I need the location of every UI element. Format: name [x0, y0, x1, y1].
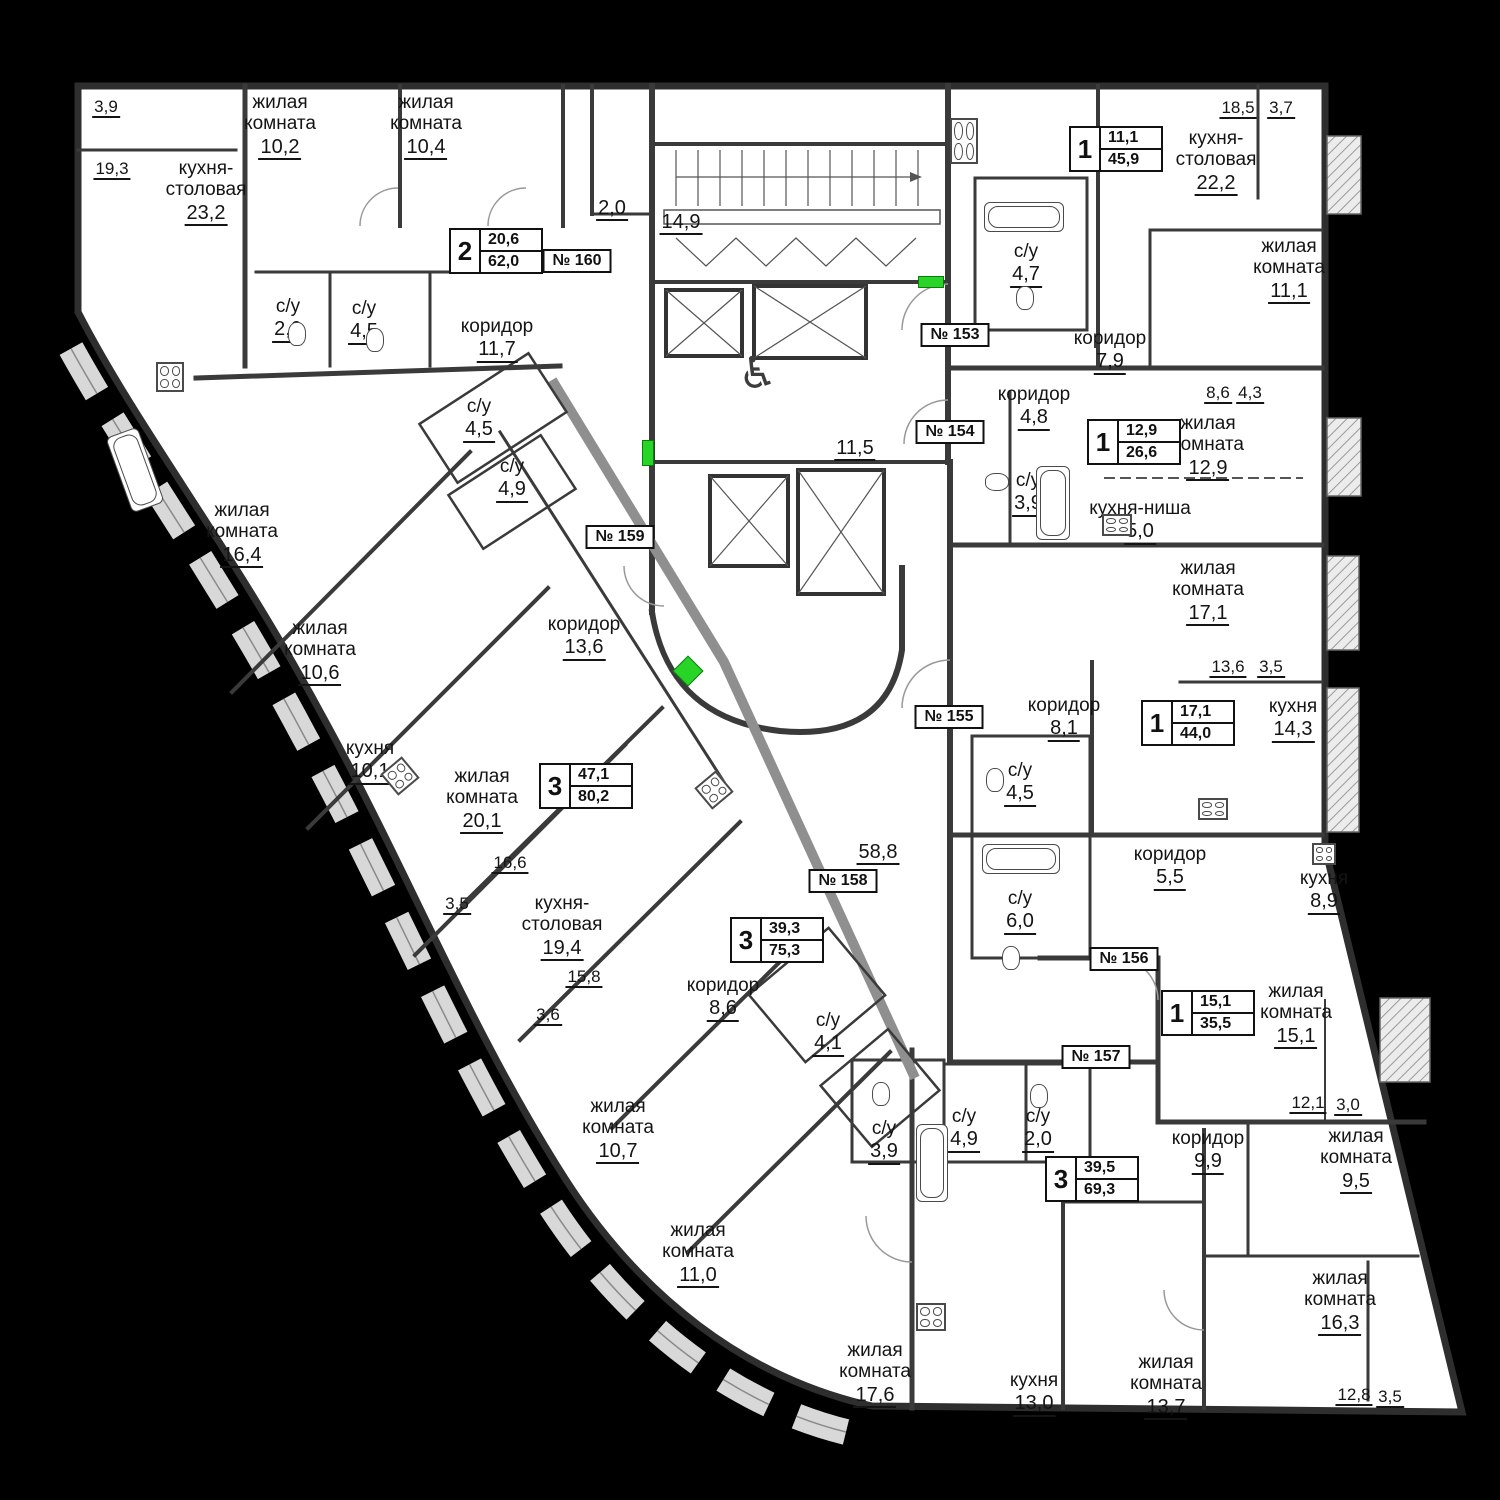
room-label: с/у6,0 [1004, 888, 1036, 935]
dimension-label: 3,5 [443, 893, 471, 915]
room-label: коридор11,7 [461, 316, 534, 363]
room-label: с/у4,7 [1010, 241, 1042, 288]
room-label: с/у4,5 [1004, 760, 1036, 807]
room-label: коридор13,6 [548, 614, 621, 661]
room-label: жилаякомната20,1 [446, 766, 518, 834]
unit-number-plate: № 157 [1062, 1045, 1131, 1069]
stove-icon [916, 1303, 946, 1331]
room-label: с/у4,9 [496, 456, 528, 503]
room-label: жилаякомната9,5 [1320, 1126, 1392, 1194]
toilet-icon [1016, 286, 1034, 310]
room-label: коридор5,5 [1134, 844, 1207, 891]
room-label: коридор7,9 [1074, 328, 1147, 375]
bathtub-icon [1036, 466, 1070, 540]
room-label: жилаякомната16,3 [1304, 1268, 1376, 1336]
toilet-icon [872, 1082, 890, 1106]
unit-number-plate: № 155 [915, 705, 984, 729]
room-label: жилаякомната16,4 [206, 500, 278, 568]
room-label: с/у2,0 [1022, 1106, 1054, 1153]
room-label: кухня14,3 [1269, 696, 1317, 743]
unit-number-plate: № 159 [586, 525, 655, 549]
room-label: коридор4,8 [998, 384, 1071, 431]
unit-number-plate: № 156 [1090, 947, 1159, 971]
entry-marker [918, 276, 944, 288]
bathtub-icon [916, 1124, 948, 1202]
room-label: жилаякомната12,9 [1172, 413, 1244, 481]
apartment-stat-badge: 347,180,2 [539, 763, 633, 809]
stove-icon [156, 362, 184, 392]
room-label: 14,9 [660, 210, 703, 235]
room-label: жилаякомната11,0 [662, 1220, 734, 1288]
stove-icon [1198, 798, 1228, 820]
toilet-icon [985, 473, 1009, 491]
dimension-label: 3,9 [92, 96, 120, 118]
apartment-stat-badge: 220,662,0 [449, 228, 543, 274]
unit-number-plate: № 160 [543, 249, 612, 273]
room-label: жилаякомната10,4 [390, 92, 462, 160]
room-label: жилаякомната13,7 [1130, 1352, 1202, 1420]
apartment-stat-badge: 111,145,9 [1069, 126, 1163, 172]
unit-number-plate: № 154 [916, 420, 985, 444]
dimension-label: 3,7 [1267, 97, 1295, 119]
room-label: с/у4,1 [812, 1010, 844, 1057]
dimension-label: 4,3 [1236, 382, 1264, 404]
unit-number-plate: № 158 [809, 869, 878, 893]
room-label: кухня-столовая19,4 [522, 893, 603, 961]
floor-plan: жилаякомната10,2жилаякомната10,4кухня-ст… [0, 0, 1500, 1500]
stove-icon [1102, 514, 1132, 536]
room-label: кухня13,0 [1010, 1370, 1058, 1417]
entry-marker [642, 440, 654, 466]
dimension-label: 18,5 [1219, 97, 1256, 119]
room-label: жилаякомната17,1 [1172, 558, 1244, 626]
room-label: кухня8,9 [1300, 868, 1348, 915]
apartment-stat-badge: 339,375,3 [730, 917, 824, 963]
dimension-label: 8,6 [1204, 382, 1232, 404]
room-label: жилаякомната17,6 [839, 1340, 911, 1408]
toilet-icon [366, 328, 384, 352]
bathtub-icon [982, 844, 1060, 874]
dimension-label: 12,1 [1289, 1092, 1326, 1114]
unit-number-plate: № 153 [921, 323, 990, 347]
apartment-stat-badge: 112,926,6 [1087, 419, 1181, 465]
stove-icon [950, 118, 978, 164]
apartment-stat-badge: 339,569,3 [1045, 1156, 1139, 1202]
bathtub-icon [984, 202, 1064, 232]
room-label: с/у3,9 [868, 1118, 900, 1165]
dimension-label: 3,0 [1334, 1094, 1362, 1116]
dimension-label: 3,5 [1376, 1386, 1404, 1408]
dimension-label: 3,5 [1257, 656, 1285, 678]
room-label: кухня-столовая22,2 [1176, 128, 1257, 196]
toilet-icon [288, 322, 306, 346]
apartment-stat-badge: 115,135,5 [1161, 990, 1255, 1036]
room-label: 11,5 [834, 436, 875, 461]
wheelchair-icon: ♿ [738, 352, 786, 404]
room-label: жилаякомната15,1 [1260, 981, 1332, 1049]
dimension-label: 16,6 [491, 852, 528, 874]
room-label: кухня-столовая23,2 [166, 158, 247, 226]
room-label: коридор9,9 [1172, 1128, 1245, 1175]
room-label: жилаякомната10,6 [284, 618, 356, 686]
apartment-stat-badge: 117,144,0 [1141, 700, 1235, 746]
room-label: коридор8,6 [687, 975, 760, 1022]
room-label: коридор8,1 [1028, 695, 1101, 742]
dimension-label: 13,6 [1209, 656, 1246, 678]
toilet-icon [1030, 1084, 1048, 1108]
toilet-icon [986, 768, 1004, 792]
room-label: жилаякомната11,1 [1253, 236, 1325, 304]
room-label: жилаякомната10,2 [244, 92, 316, 160]
stove-icon [1312, 843, 1336, 865]
dimension-label: 19,3 [93, 158, 130, 180]
dimension-label: 3,6 [534, 1004, 562, 1026]
dimension-label: 15,8 [565, 966, 602, 988]
dimension-label: 12,8 [1335, 1384, 1372, 1406]
room-label: 58,8 [857, 840, 900, 865]
room-label: с/у4,5 [463, 396, 495, 443]
toilet-icon [1002, 946, 1020, 970]
room-label: с/у4,9 [948, 1106, 980, 1153]
room-label: 2,0 [596, 196, 628, 221]
room-label: жилаякомната10,7 [582, 1096, 654, 1164]
